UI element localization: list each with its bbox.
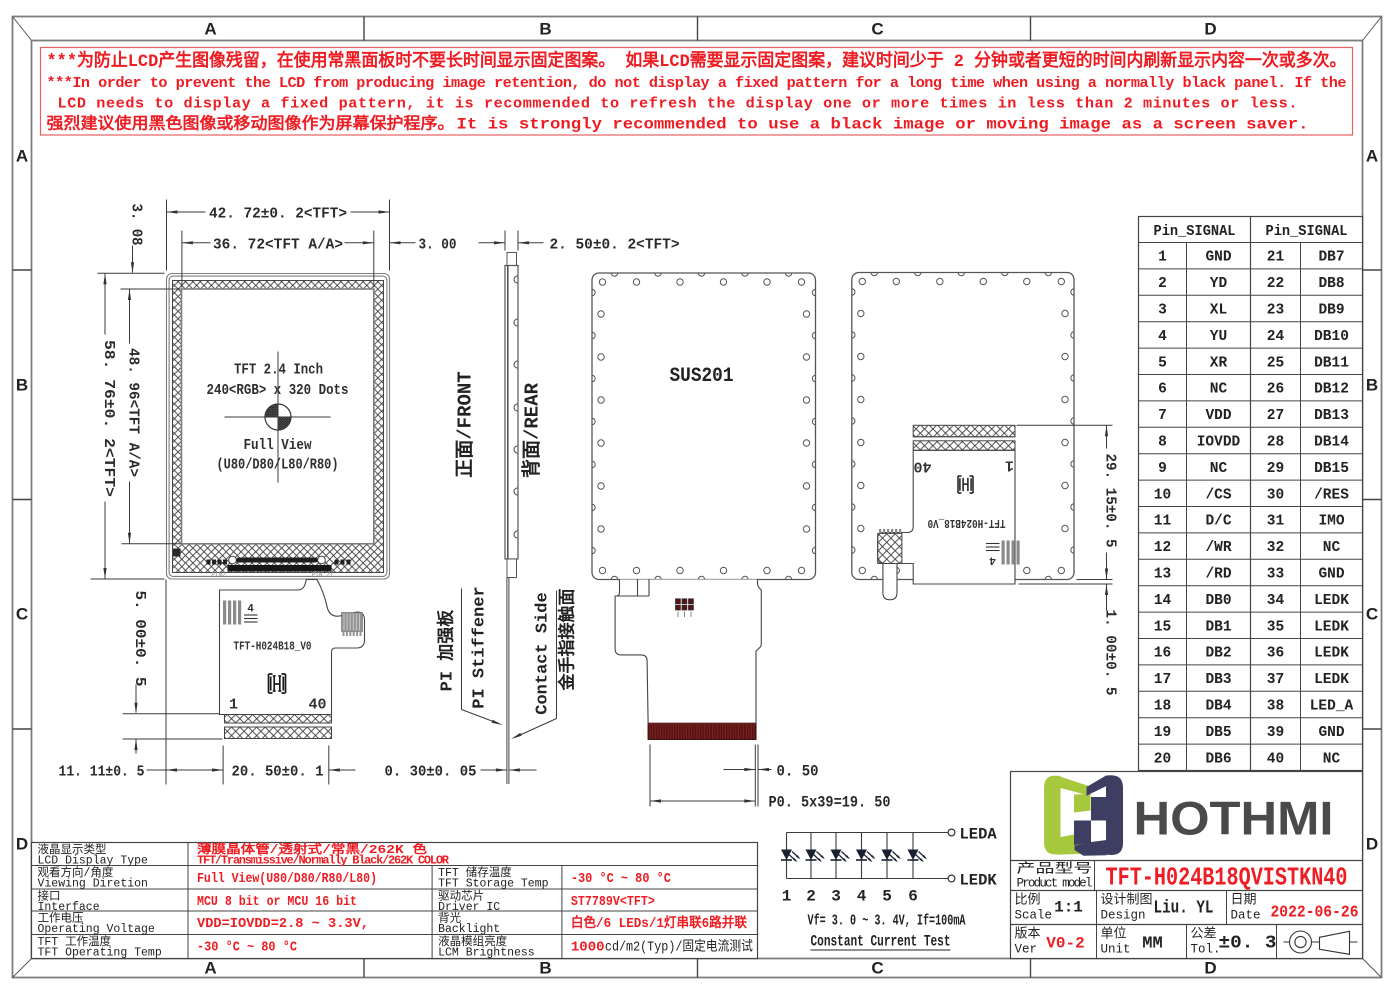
svg-text:1: 1 <box>782 888 792 906</box>
svg-text:5. 00±0. 5: 5. 00±0. 5 <box>131 591 148 687</box>
svg-text:D: D <box>1366 835 1378 854</box>
svg-text:38: 38 <box>1267 699 1284 715</box>
svg-text:1: 1 <box>1005 457 1014 474</box>
svg-text:36: 36 <box>1267 646 1284 662</box>
svg-text:35: 35 <box>1267 619 1284 635</box>
svg-text:4: 4 <box>1158 329 1167 345</box>
svg-text:Date: Date <box>1231 909 1261 923</box>
svg-text:19: 19 <box>1154 725 1171 741</box>
svg-text:48. 96<TFT A/A>: 48. 96<TFT A/A> <box>125 348 142 477</box>
svg-text:6: 6 <box>1158 382 1167 398</box>
svg-text:17: 17 <box>1154 672 1171 688</box>
svg-text:34: 34 <box>1267 593 1285 609</box>
svg-text:V0-2: V0-2 <box>1046 935 1084 953</box>
svg-text:3. 08: 3. 08 <box>128 204 145 246</box>
svg-text:PIN 21: PIN 21 <box>312 572 334 579</box>
svg-text:8: 8 <box>1158 435 1167 451</box>
svg-text:正面/FRONT: 正面/FRONT <box>455 371 477 477</box>
svg-text:3: 3 <box>831 888 841 906</box>
svg-text:32: 32 <box>1267 540 1284 556</box>
svg-text:TFT Storage Temp: TFT Storage Temp <box>438 878 549 891</box>
svg-text:比例: 比例 <box>1015 893 1041 908</box>
svg-text:A: A <box>204 20 216 39</box>
svg-text:TFT-H024B18_V0: TFT-H024B18_V0 <box>234 641 312 654</box>
svg-text:2. 50±0. 2<TFT>: 2. 50±0. 2<TFT> <box>550 237 680 254</box>
svg-text:LED_A: LED_A <box>1310 699 1354 715</box>
svg-text:-30 °C ~ 80 °C: -30 °C ~ 80 °C <box>571 871 672 887</box>
svg-text:B: B <box>1366 376 1378 395</box>
svg-text:2022-06-26: 2022-06-26 <box>1271 904 1359 923</box>
svg-text:DB10: DB10 <box>1314 329 1349 345</box>
svg-text:3. 00: 3. 00 <box>419 237 457 254</box>
svg-text:28: 28 <box>1267 435 1284 451</box>
svg-text:DB5: DB5 <box>1205 725 1231 741</box>
svg-text:C: C <box>1366 605 1378 624</box>
svg-text:9: 9 <box>1158 461 1167 477</box>
svg-text:单位: 单位 <box>1101 927 1127 942</box>
svg-text:1:1: 1:1 <box>1054 899 1083 917</box>
svg-text:5: 5 <box>1158 355 1167 371</box>
svg-text:36. 72<TFT A/A>: 36. 72<TFT A/A> <box>213 237 343 254</box>
svg-text:4: 4 <box>857 888 867 906</box>
svg-text:40: 40 <box>1267 751 1284 767</box>
svg-text:GND: GND <box>1205 250 1231 266</box>
svg-text:42. 72±0. 2<TFT>: 42. 72±0. 2<TFT> <box>209 206 347 223</box>
svg-text:±0. 3: ±0. 3 <box>1219 934 1277 954</box>
svg-text:Backlight: Backlight <box>438 923 500 936</box>
svg-text:A: A <box>16 147 28 166</box>
svg-text:1. 00±0. 5: 1. 00±0. 5 <box>1102 610 1119 696</box>
svg-text:Unit: Unit <box>1101 943 1131 957</box>
svg-text:/RD: /RD <box>1205 567 1231 583</box>
svg-text:22: 22 <box>1267 276 1284 292</box>
svg-text:PI 加强板: PI 加强板 <box>436 609 458 692</box>
svg-text:LEDA: LEDA <box>960 826 998 844</box>
svg-text:27: 27 <box>1267 408 1284 424</box>
svg-text:XR: XR <box>1210 355 1228 371</box>
svg-text:5: 5 <box>882 888 892 906</box>
svg-text:29: 29 <box>1267 461 1284 477</box>
svg-text:15: 15 <box>1154 619 1171 635</box>
svg-text:7: 7 <box>1158 408 1167 424</box>
svg-text:DB4: DB4 <box>1205 699 1231 715</box>
svg-text:NC: NC <box>1210 382 1228 398</box>
svg-text:NC: NC <box>1323 540 1341 556</box>
svg-text:LCD Display Type: LCD Display Type <box>38 855 149 868</box>
svg-text:HOTHMI: HOTHMI <box>1134 792 1334 845</box>
svg-text:日期: 日期 <box>1231 893 1257 908</box>
svg-text:LCD needs to display a fixed p: LCD needs to display a fixed pattern, it… <box>58 95 1298 113</box>
svg-text:TFT/Transmissive/Normally Blac: TFT/Transmissive/Normally Black/262K COL… <box>197 854 450 868</box>
svg-text:IOVDD: IOVDD <box>1197 435 1241 451</box>
svg-text:产品型号: 产品型号 <box>1017 862 1093 877</box>
svg-text:B: B <box>539 20 551 39</box>
svg-text:58. 76±0. 2<TFT>: 58. 76±0. 2<TFT> <box>100 340 117 497</box>
svg-text:Ver: Ver <box>1015 943 1038 957</box>
svg-text:VDD=IOVDD=2.8 ~ 3.3V,: VDD=IOVDD=2.8 ~ 3.3V, <box>197 916 369 932</box>
svg-text:1: 1 <box>229 697 238 714</box>
svg-text:Pin_SIGNAL: Pin_SIGNAL <box>1266 223 1348 240</box>
svg-text:Pin_SIGNAL: Pin_SIGNAL <box>1154 223 1236 240</box>
svg-text:DB14: DB14 <box>1314 435 1349 451</box>
svg-text:LEDK: LEDK <box>1314 593 1349 609</box>
svg-text:***In order to prevent the LCD: ***In order to prevent the LCD from prod… <box>47 74 1347 92</box>
svg-text:Constant Current Test: Constant Current Test <box>811 933 951 951</box>
svg-text:10: 10 <box>1154 487 1171 503</box>
svg-text:C: C <box>871 959 883 978</box>
svg-text:YD: YD <box>1210 276 1228 292</box>
svg-text:NC: NC <box>1323 751 1341 767</box>
svg-text:TFT Operating Temp: TFT Operating Temp <box>38 947 162 960</box>
svg-text:/RES: /RES <box>1314 487 1349 503</box>
svg-text:D: D <box>1204 20 1216 39</box>
svg-text:PIN2: PIN2 <box>211 572 226 579</box>
svg-text:1: 1 <box>1158 250 1167 266</box>
svg-text:公差: 公差 <box>1191 927 1217 942</box>
svg-text:Operating Voltage: Operating Voltage <box>38 923 155 936</box>
svg-text:DB2: DB2 <box>1205 646 1231 662</box>
svg-text:4: 4 <box>247 604 254 616</box>
svg-text:(U80/D80/L80/R80): (U80/D80/L80/R80) <box>217 457 339 474</box>
svg-text:DB11: DB11 <box>1314 355 1349 371</box>
svg-text:13: 13 <box>1154 567 1171 583</box>
svg-text:Design: Design <box>1101 909 1146 923</box>
svg-text:/CS: /CS <box>1205 487 1231 503</box>
svg-text:C: C <box>871 20 883 39</box>
svg-text:Contact Side: Contact Side <box>534 592 553 714</box>
svg-text:GND: GND <box>1318 725 1344 741</box>
svg-text:6: 6 <box>908 888 918 906</box>
svg-text:Full View(U80/D80/R80/L80): Full View(U80/D80/R80/L80) <box>197 871 377 887</box>
svg-text:DB6: DB6 <box>1205 751 1231 767</box>
svg-text:DB12: DB12 <box>1314 382 1349 398</box>
svg-text:LEDK: LEDK <box>1314 672 1349 688</box>
svg-text:Scale: Scale <box>1015 909 1053 923</box>
svg-text:39: 39 <box>1267 725 1284 741</box>
svg-text:14: 14 <box>1154 593 1172 609</box>
svg-text:TFT-H024B18QVISTKN40: TFT-H024B18QVISTKN40 <box>1106 863 1348 893</box>
svg-text:设计制图: 设计制图 <box>1101 893 1153 908</box>
svg-text:Product model: Product model <box>1017 877 1093 891</box>
svg-text:TFT-H024B18_V0: TFT-H024B18_V0 <box>927 516 1005 529</box>
svg-text:DB7: DB7 <box>1318 250 1344 266</box>
svg-text:XL: XL <box>1210 303 1227 319</box>
svg-text:DB3: DB3 <box>1205 672 1231 688</box>
svg-text:LCM Brightness: LCM Brightness <box>438 947 535 960</box>
svg-text:DB1: DB1 <box>1205 619 1231 635</box>
svg-text:YU: YU <box>1210 329 1227 345</box>
svg-text:23: 23 <box>1267 303 1284 319</box>
svg-text:20: 20 <box>1154 751 1171 767</box>
svg-text:PI Stiffener: PI Stiffener <box>471 586 490 708</box>
svg-text:GND: GND <box>1318 567 1344 583</box>
svg-text:B: B <box>539 959 551 978</box>
svg-text:Full View: Full View <box>244 437 312 454</box>
svg-text:33: 33 <box>1267 567 1284 583</box>
svg-text:白色/6 LEDs/1灯串联6路并联: 白色/6 LEDs/1灯串联6路并联 <box>571 914 747 932</box>
svg-text:LEDK: LEDK <box>960 872 998 890</box>
svg-text:4: 4 <box>989 554 996 566</box>
svg-text:31: 31 <box>1267 514 1285 530</box>
svg-text:强烈建议使用黑色图像或移动图像作为屏幕保护程序。: 强烈建议使用黑色图像或移动图像作为屏幕保护程序。 <box>47 114 455 134</box>
svg-text:B: B <box>16 376 28 395</box>
svg-text:12: 12 <box>1154 540 1171 556</box>
svg-text:***为防止LCD产生图像残留，在使用常黑面板时不要长时间显: ***为防止LCD产生图像残留，在使用常黑面板时不要长时间显示固定图案。 如果L… <box>47 50 1347 72</box>
svg-text:DB15: DB15 <box>1314 461 1349 477</box>
svg-text:30: 30 <box>1267 487 1284 503</box>
svg-text:1000: 1000 <box>571 940 605 956</box>
svg-text:3: 3 <box>1158 303 1167 319</box>
svg-text:Vf= 3. 0 ~ 3. 4V, If=100mA: Vf= 3. 0 ~ 3. 4V, If=100mA <box>808 913 966 930</box>
svg-text:MM: MM <box>1142 935 1162 954</box>
svg-text:LEDK: LEDK <box>1314 619 1349 635</box>
svg-text:版本: 版本 <box>1015 927 1041 942</box>
svg-text:40: 40 <box>308 697 326 714</box>
svg-text:29. 15±0. 5: 29. 15±0. 5 <box>1102 454 1119 548</box>
svg-text:21: 21 <box>1267 250 1285 266</box>
svg-text:DB13: DB13 <box>1314 408 1349 424</box>
svg-text:D/C: D/C <box>1205 514 1231 530</box>
svg-text:DB9: DB9 <box>1318 303 1344 319</box>
svg-text:0. 50: 0. 50 <box>777 763 819 781</box>
svg-text:MCU 8 bit or MCU 16 bit: MCU 8 bit or MCU 16 bit <box>197 894 357 910</box>
svg-text:cd/m2(Typ)/固定电流测试: cd/m2(Typ)/固定电流测试 <box>605 939 753 956</box>
svg-text:VDD: VDD <box>1205 408 1231 424</box>
svg-text:P0. 5x39=19. 50: P0. 5x39=19. 50 <box>769 794 891 812</box>
svg-text:-30 °C ~ 80 °C: -30 °C ~ 80 °C <box>197 940 298 956</box>
svg-text:/WR: /WR <box>1205 540 1231 556</box>
svg-text:D: D <box>1204 959 1216 978</box>
svg-text:Liu. YL: Liu. YL <box>1154 899 1214 919</box>
svg-text:Viewing Diretion: Viewing Diretion <box>38 878 148 891</box>
svg-text:25: 25 <box>1267 355 1284 371</box>
svg-text:2: 2 <box>1158 276 1167 292</box>
svg-text:NC: NC <box>1210 461 1228 477</box>
svg-text:18: 18 <box>1154 699 1171 715</box>
svg-text:26: 26 <box>1267 382 1284 398</box>
svg-text:IMO: IMO <box>1318 514 1344 530</box>
svg-text:A: A <box>204 959 216 978</box>
svg-text:DB8: DB8 <box>1318 276 1344 292</box>
svg-text:20. 50±0. 1: 20. 50±0. 1 <box>232 764 324 781</box>
svg-text:0. 30±0. 05: 0. 30±0. 05 <box>385 764 477 781</box>
svg-text:LEDK: LEDK <box>1314 646 1349 662</box>
svg-text:40: 40 <box>913 458 931 475</box>
svg-text:11. 11±0. 5: 11. 11±0. 5 <box>59 764 145 781</box>
svg-text:DB0: DB0 <box>1205 593 1231 609</box>
svg-text:37: 37 <box>1267 672 1284 688</box>
svg-text:Tol.: Tol. <box>1191 943 1221 957</box>
svg-text:C: C <box>16 605 28 624</box>
svg-text:24: 24 <box>1267 329 1285 345</box>
svg-text:2: 2 <box>806 888 816 906</box>
svg-text:背面/REAR: 背面/REAR <box>520 382 544 478</box>
svg-text:D: D <box>16 835 28 854</box>
svg-text:A: A <box>1366 147 1378 166</box>
svg-text:It is strongly recommended to: It is strongly recommended to use a blac… <box>457 116 1309 134</box>
svg-text:16: 16 <box>1154 646 1171 662</box>
svg-text:ST7789V<TFT>: ST7789V<TFT> <box>571 894 655 910</box>
svg-text:SUS201: SUS201 <box>670 365 734 388</box>
svg-text:金手指接触面: 金手指接触面 <box>557 589 579 692</box>
svg-text:11: 11 <box>1154 514 1172 530</box>
